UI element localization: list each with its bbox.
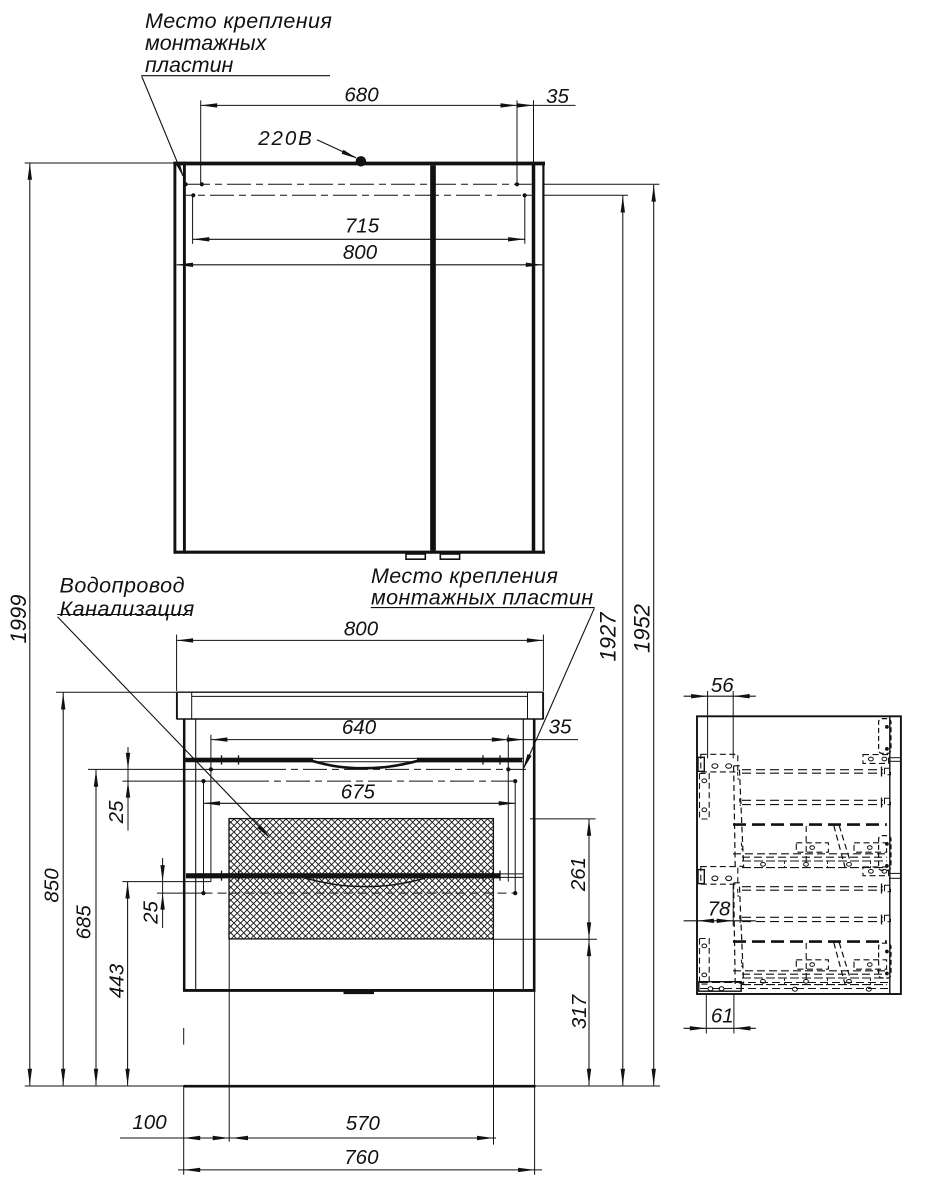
svg-text:монтажных пластин: монтажных пластин: [371, 586, 593, 610]
svg-text:78: 78: [708, 898, 731, 921]
svg-text:850: 850: [41, 868, 64, 903]
svg-text:25: 25: [105, 800, 128, 824]
svg-text:Место крепления: Место крепления: [145, 9, 332, 33]
svg-text:800: 800: [343, 241, 378, 264]
svg-text:1999: 1999: [6, 595, 31, 644]
svg-text:61: 61: [711, 1005, 734, 1028]
svg-text:монтажных: монтажных: [145, 31, 268, 55]
svg-text:760: 760: [344, 1146, 379, 1169]
svg-text:800: 800: [344, 618, 379, 641]
svg-text:пластин: пластин: [145, 53, 234, 77]
svg-text:Водопровод: Водопровод: [60, 574, 185, 598]
svg-text:570: 570: [346, 1112, 381, 1135]
svg-text:Канализация: Канализация: [60, 597, 195, 621]
svg-text:100: 100: [132, 1111, 167, 1134]
svg-text:35: 35: [546, 85, 569, 108]
svg-text:317: 317: [568, 993, 591, 1029]
svg-text:675: 675: [341, 780, 376, 803]
svg-text:1927: 1927: [596, 612, 621, 662]
svg-text:685: 685: [73, 905, 96, 940]
svg-text:25: 25: [140, 901, 163, 925]
svg-text:715: 715: [345, 215, 380, 238]
svg-text:680: 680: [344, 84, 379, 107]
svg-text:Место крепления: Место крепления: [371, 564, 558, 588]
svg-text:1952: 1952: [630, 604, 655, 653]
svg-text:220В: 220В: [257, 127, 313, 150]
svg-text:35: 35: [549, 716, 572, 739]
svg-text:261: 261: [567, 857, 590, 892]
svg-text:640: 640: [342, 716, 377, 739]
svg-text:56: 56: [711, 674, 734, 697]
svg-text:443: 443: [105, 963, 128, 998]
